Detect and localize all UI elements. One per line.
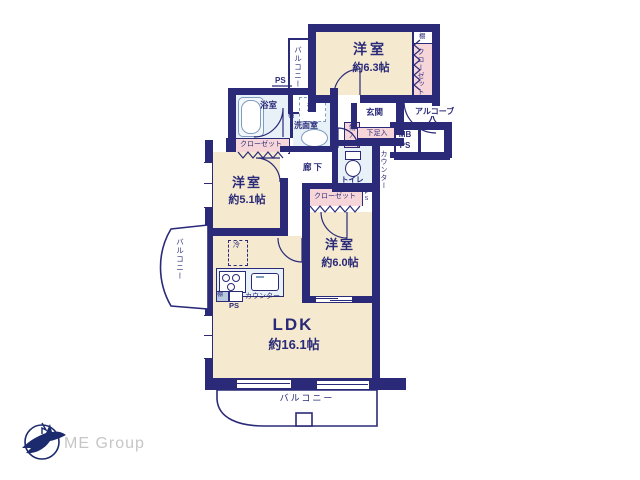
bedroom2-size: 約5.1帖: [228, 195, 265, 206]
mb-label: MB: [399, 131, 411, 139]
bedroom1-name: 洋室: [353, 42, 387, 56]
ps-top-label: PS: [275, 77, 286, 85]
kitchen-faucet: [256, 276, 264, 278]
bedroom3-name: 洋室: [325, 238, 355, 251]
bathtub-inner: [241, 100, 261, 134]
bedroom2-name: 洋室: [232, 176, 262, 189]
storage-label: 物入: [347, 124, 354, 139]
toilet-tank: [345, 151, 361, 160]
shelf-washroom-label: 棚: [288, 113, 295, 120]
room-bedroom3-fill: [310, 212, 372, 296]
bedroom3-size: 約6.0帖: [321, 258, 358, 269]
wash-sink: [301, 129, 328, 147]
counter-kitchen-label: カウンター: [245, 293, 280, 300]
room-bedroom2-fill: [213, 152, 280, 228]
washer-label: 洗: [307, 104, 315, 112]
closet-bedroom3-label: クローゼット: [314, 193, 356, 200]
counter-right-label: カウンター: [380, 150, 387, 190]
shelf-kitchen-label: 棚: [217, 292, 223, 298]
bath-label: 浴室: [260, 101, 277, 110]
washroom-label: 洗面室: [294, 122, 318, 130]
me-group-logo: [22, 423, 66, 459]
closet-bedroom1-label: クローゼット: [417, 48, 424, 96]
shoebox-label: 下足入: [367, 130, 388, 137]
fridge-label: 冷: [233, 242, 240, 249]
closet-bedroom2-label: クローゼット: [240, 141, 282, 148]
ps-closet-label: PS: [363, 190, 369, 202]
hallway-label: 廊下: [303, 163, 324, 172]
logo-text: ME Group: [64, 436, 145, 452]
bedroom1-size: 約6.3帖: [352, 63, 389, 74]
ldk-size: 約16.1帖: [268, 338, 319, 351]
toilet-label: トイレ: [341, 176, 364, 184]
shelf-bedroom1-label: 棚: [419, 34, 426, 41]
genkan-label: 玄関: [366, 108, 383, 117]
balcony-top-label: バルコニー: [294, 46, 302, 89]
alcove-label: アルコーブ: [414, 108, 455, 116]
mb-ps-label: PS: [400, 142, 411, 150]
balcony-bottom-label: バルコニー: [280, 394, 335, 403]
ps-kitchen-label: PS: [229, 302, 239, 310]
ldk-name: LDK: [273, 316, 314, 333]
balcony-left-label: バルコニー: [176, 238, 184, 281]
floorplan-canvas: 洋室 約6.3帖 クローゼット 棚 バルコニー PS 浴室 洗 棚 洗面室 クロ…: [0, 0, 640, 480]
